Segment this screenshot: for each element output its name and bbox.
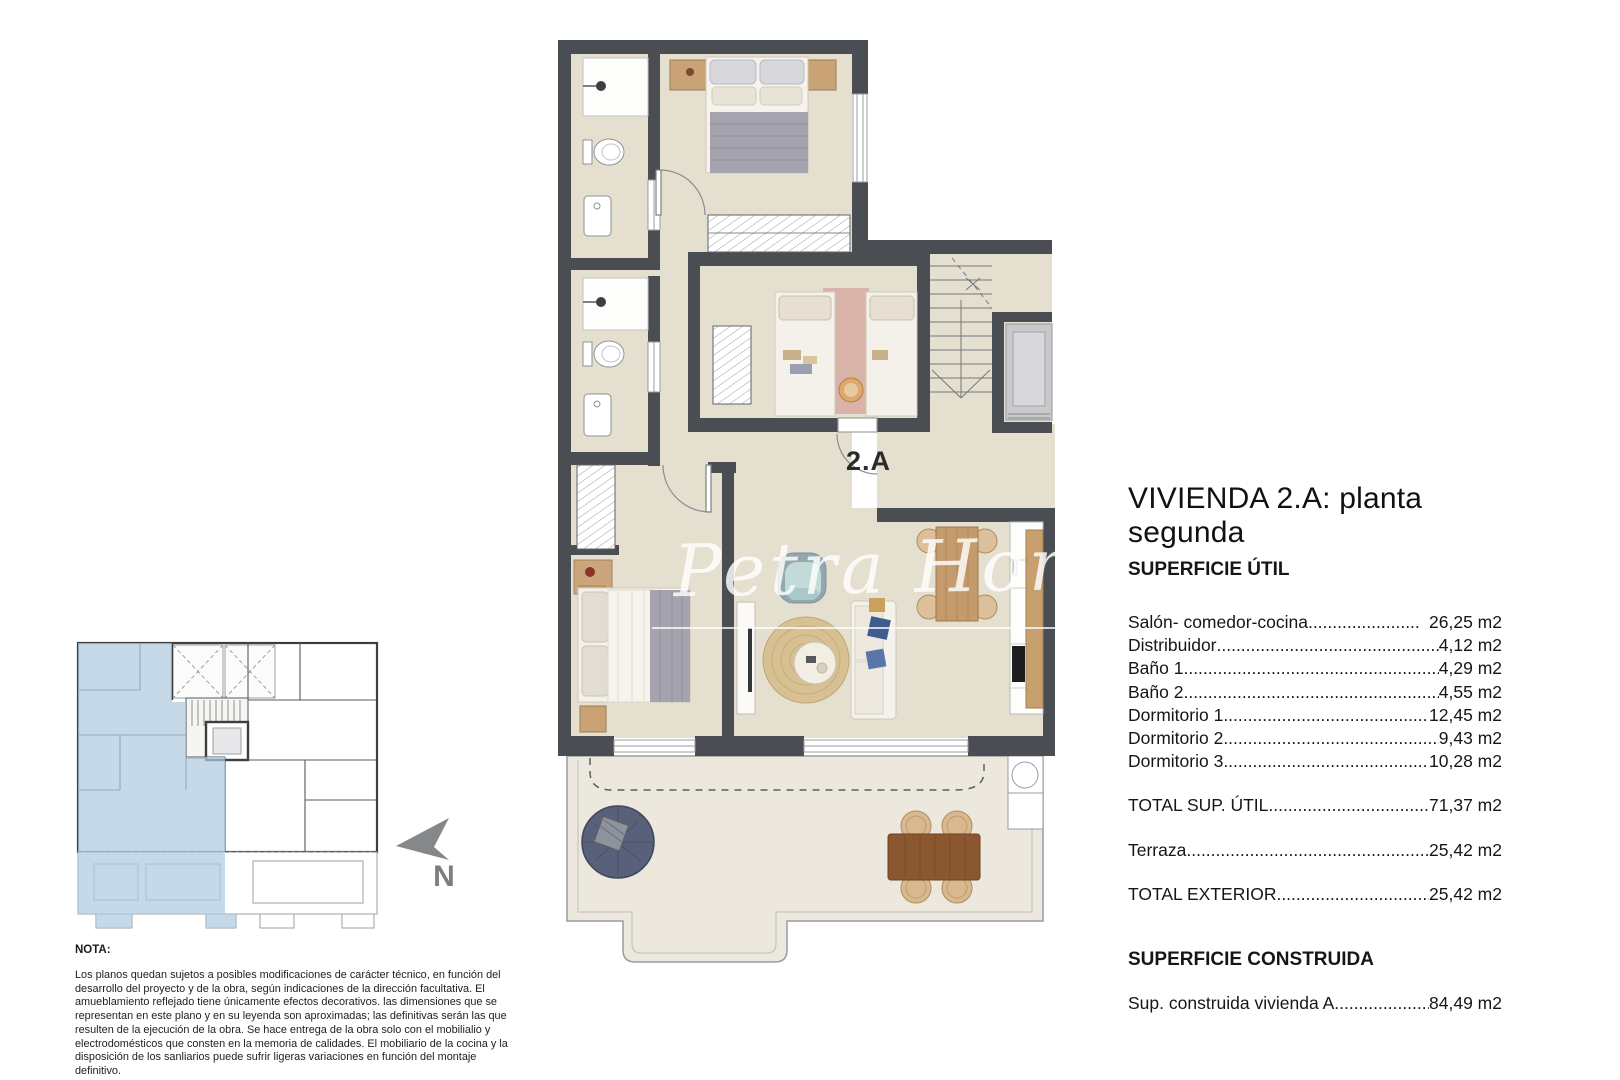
- area-row: Sup. construida vivienda A84,49 m2: [1128, 992, 1502, 1015]
- terrace: [567, 756, 1043, 962]
- area-label: Dormitorio 2: [1128, 727, 1223, 750]
- area-label: TOTAL EXTERIOR: [1128, 883, 1276, 906]
- area-value: 9,43 m2: [1439, 727, 1502, 750]
- area-row: Distribuidor4,12 m2: [1128, 634, 1502, 657]
- shower-1: [583, 58, 648, 116]
- sink-2: [584, 394, 611, 436]
- floor-plan: 2.A: [540, 28, 1070, 973]
- dot-leader: [1183, 657, 1438, 680]
- north-label: N: [433, 860, 455, 893]
- area-label: Salón- comedor-cocina: [1128, 611, 1308, 634]
- north-arrow: N: [396, 818, 455, 893]
- nightstand: [806, 60, 836, 90]
- superficie-util-totals: TOTAL SUP. ÚTIL71,37 m2Terraza25,42 m2TO…: [1128, 794, 1502, 906]
- area-value: 4,55 m2: [1439, 681, 1502, 704]
- key-plan-outline: [78, 643, 377, 928]
- sink-1: [584, 196, 611, 236]
- kitchen-counter: [1010, 522, 1043, 714]
- sofa: [851, 598, 896, 719]
- area-value: 25,42 m2: [1429, 839, 1502, 862]
- area-row: Baño 24,55 m2: [1128, 681, 1502, 704]
- wardrobe: [708, 215, 850, 252]
- dot-leader: [1223, 727, 1438, 750]
- superficie-construida-rows: Sup. construida vivienda A84,49 m2: [1128, 992, 1502, 1015]
- area-row: Dormitorio 29,43 m2: [1128, 727, 1502, 750]
- area-label: Baño 2: [1128, 681, 1183, 704]
- unit-label: 2.A: [846, 446, 891, 476]
- hall-wardrobe: [577, 465, 615, 549]
- dot-leader: [1186, 839, 1429, 862]
- area-row: Baño 14,29 m2: [1128, 657, 1502, 680]
- terrace-sink-unit: [1008, 756, 1043, 829]
- area-label: Terraza: [1128, 839, 1186, 862]
- area-value: 84,49 m2: [1429, 992, 1502, 1015]
- toilet-1: [583, 139, 624, 165]
- nota-body: Los planos quedan sujetos a posibles mod…: [75, 969, 512, 1079]
- terrace-lounge-chair: [582, 806, 654, 878]
- superficie-util-rows: Salón- comedor-cocina26,25 m2Distribuido…: [1128, 611, 1502, 773]
- superficie-util-heading: SUPERFICIE ÚTIL: [1128, 559, 1502, 581]
- dot-leader: [1276, 883, 1429, 906]
- armchair: [778, 553, 826, 603]
- area-panel: VIVIENDA 2.A: planta segunda SUPERFICIE …: [1128, 482, 1502, 1015]
- area-row: Terraza25,42 m2: [1128, 839, 1502, 862]
- dot-leader: [1268, 794, 1429, 817]
- tv-console: [737, 602, 755, 714]
- nota-block: NOTA: Los planos quedan sujetos a posibl…: [75, 944, 512, 1079]
- dot-leader: [1217, 634, 1439, 657]
- single-bed: [866, 292, 917, 416]
- dot-leader: [1183, 681, 1438, 704]
- area-label: Baño 1: [1128, 657, 1183, 680]
- area-label: Distribuidor: [1128, 634, 1217, 657]
- coffee-table: [794, 642, 836, 684]
- area-value: 71,37 m2: [1429, 794, 1502, 817]
- dot-leader: [1223, 750, 1429, 773]
- single-bed: [775, 292, 835, 416]
- area-value: 4,12 m2: [1439, 634, 1502, 657]
- area-label: Dormitorio 3: [1128, 750, 1223, 773]
- round-side-table: [839, 378, 863, 402]
- area-row: Dormitorio 310,28 m2: [1128, 750, 1502, 773]
- area-row: Dormitorio 112,45 m2: [1128, 704, 1502, 727]
- dot-leader: [1223, 704, 1429, 727]
- page-title: VIVIENDA 2.A: planta segunda: [1128, 482, 1502, 550]
- wardrobe: [713, 326, 751, 404]
- key-plan: N: [60, 610, 480, 940]
- area-label: TOTAL SUP. ÚTIL: [1128, 794, 1268, 817]
- nota-heading: NOTA:: [75, 944, 512, 956]
- area-value: 10,28 m2: [1429, 750, 1502, 773]
- superficie-construida-heading: SUPERFICIE CONSTRUIDA: [1128, 949, 1502, 971]
- elevator: [1006, 324, 1052, 420]
- area-value: 26,25 m2: [1429, 611, 1502, 634]
- area-value: 12,45 m2: [1429, 704, 1502, 727]
- area-label: Sup. construida vivienda A: [1128, 992, 1334, 1015]
- nightstand: [580, 706, 606, 732]
- area-value: 25,42 m2: [1429, 883, 1502, 906]
- double-bed: [578, 588, 690, 702]
- shower-2: [583, 278, 648, 330]
- area-value: 4,29 m2: [1439, 657, 1502, 680]
- area-row: Salón- comedor-cocina26,25 m2: [1128, 611, 1502, 634]
- toilet-2: [583, 341, 624, 367]
- key-stair-core: [186, 698, 248, 760]
- double-bed: [706, 57, 808, 173]
- area-row: TOTAL SUP. ÚTIL71,37 m2: [1128, 794, 1502, 817]
- area-row: TOTAL EXTERIOR25,42 m2: [1128, 883, 1502, 906]
- dot-leader: [1334, 992, 1429, 1015]
- area-label: Dormitorio 1: [1128, 704, 1223, 727]
- dot-leader: [1308, 611, 1420, 634]
